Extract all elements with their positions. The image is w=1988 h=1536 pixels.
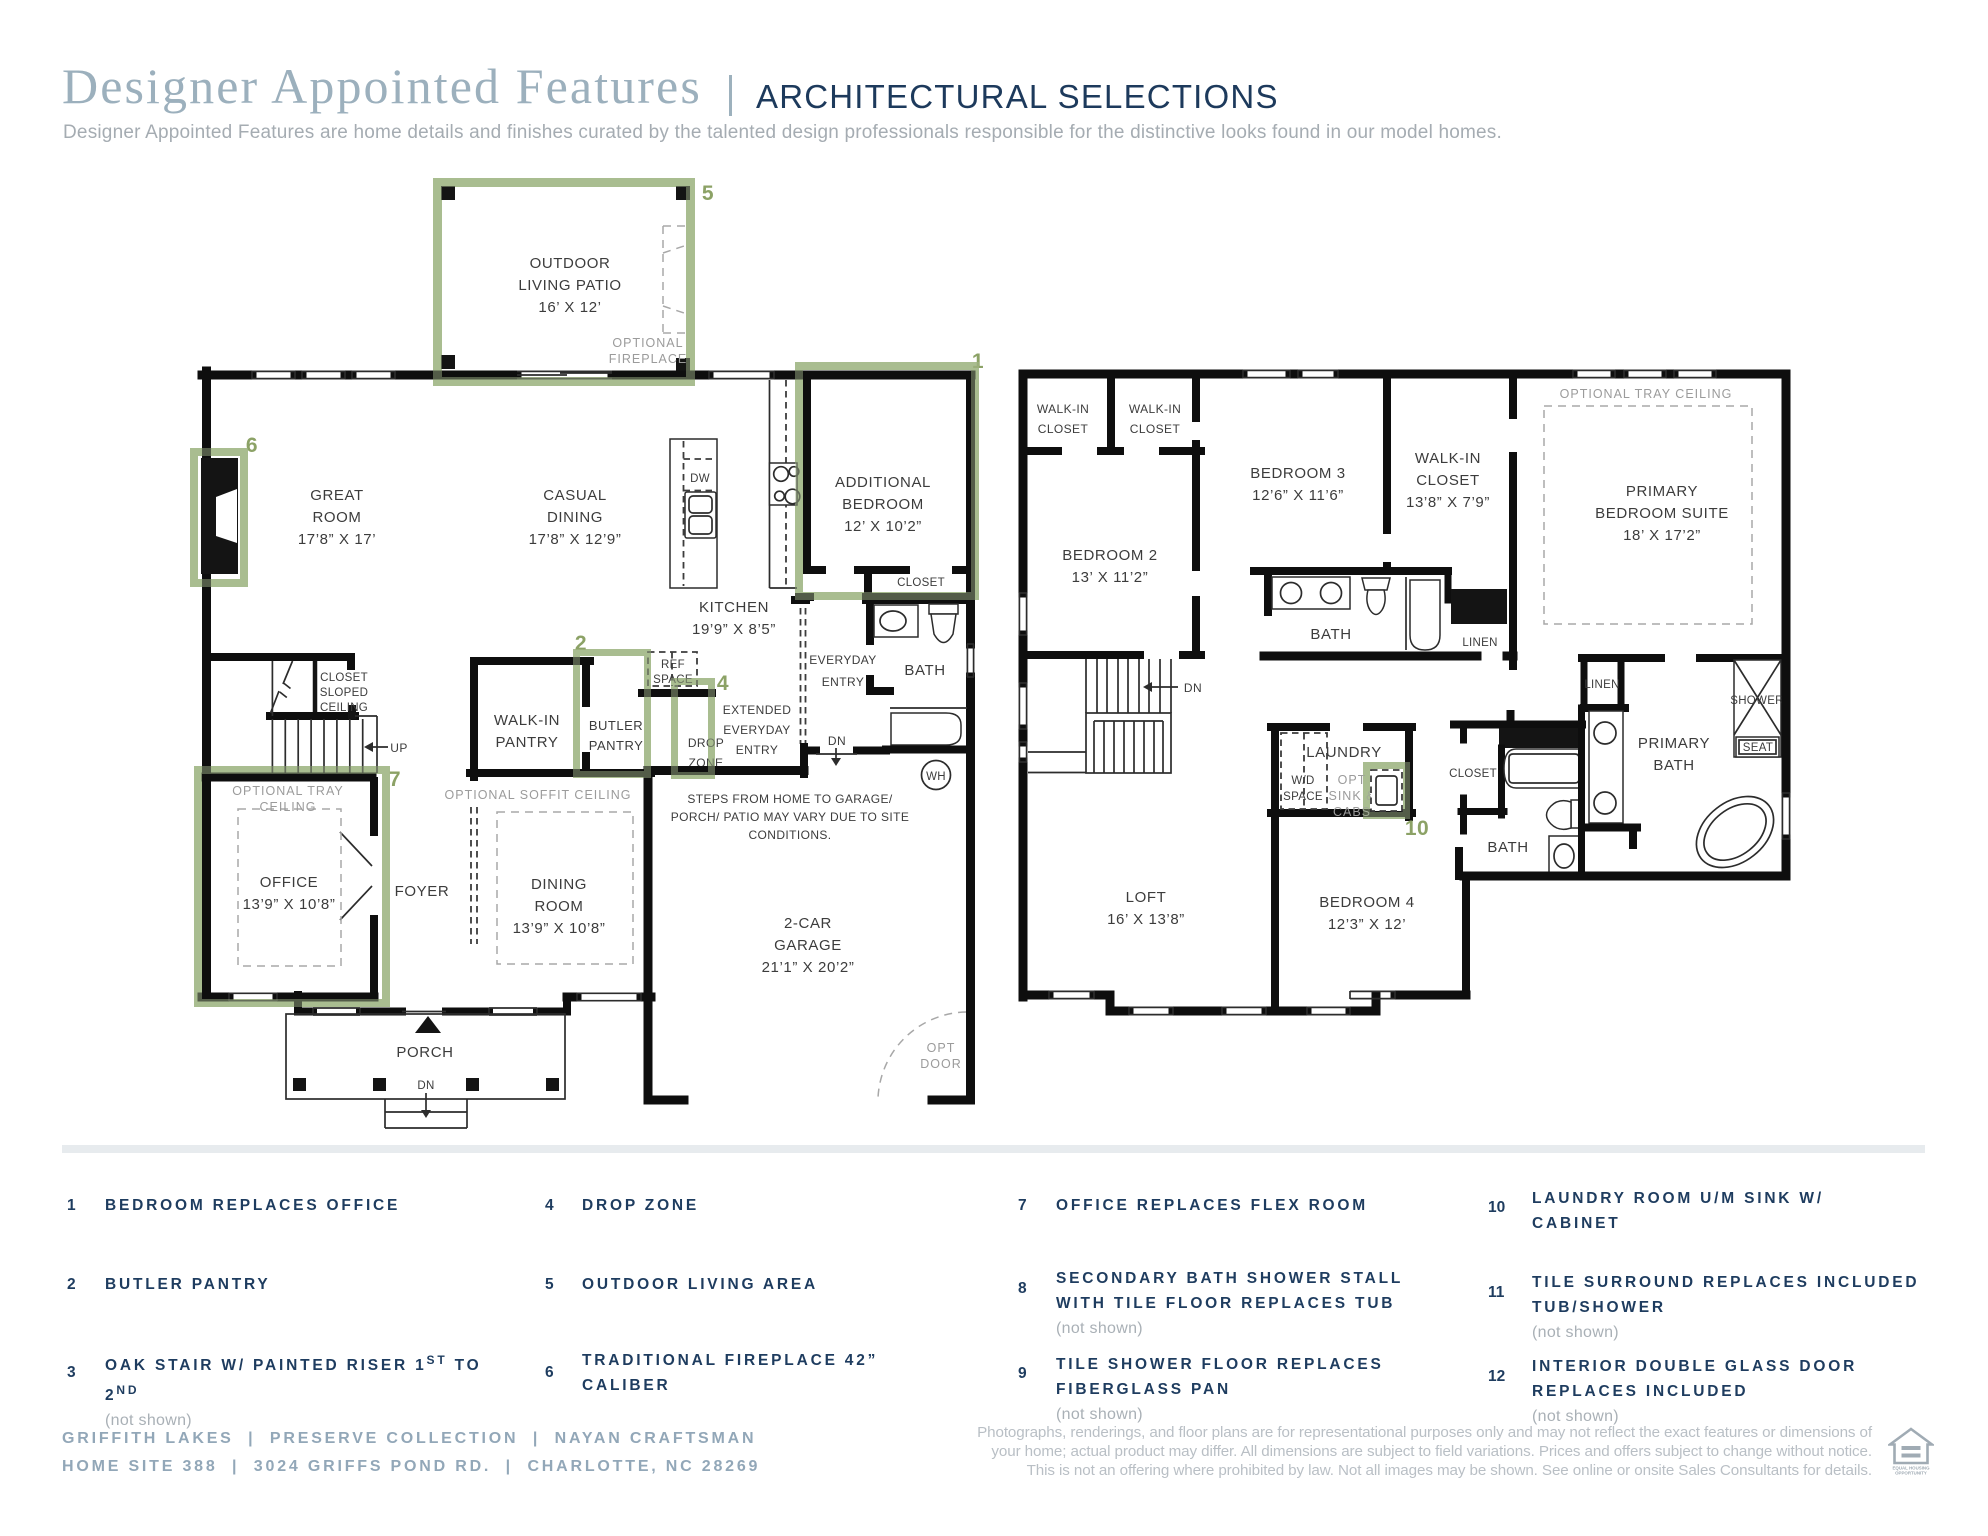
svg-text:FIREPLACE: FIREPLACE: [609, 352, 687, 366]
svg-text:OPT: OPT: [1338, 773, 1367, 787]
svg-text:DINING: DINING: [547, 509, 603, 526]
svg-text:EXTENDED: EXTENDED: [723, 703, 792, 717]
svg-text:WALK-IN: WALK-IN: [494, 712, 560, 729]
svg-text:CLOSET: CLOSET: [320, 672, 368, 684]
svg-text:WALK-IN: WALK-IN: [1415, 450, 1481, 467]
svg-text:17’8” X 12’9”: 17’8” X 12’9”: [529, 531, 622, 548]
svg-text:17’8” X 17’: 17’8” X 17’: [298, 531, 376, 548]
svg-text:ENTRY: ENTRY: [736, 743, 778, 757]
svg-text:DROP: DROP: [688, 736, 724, 750]
svg-text:LAUNDRY: LAUNDRY: [1306, 744, 1382, 761]
svg-text:DINING: DINING: [531, 876, 587, 893]
svg-text:CEILING: CEILING: [320, 702, 368, 714]
svg-text:REF: REF: [661, 659, 685, 671]
svg-text:OPT: OPT: [927, 1041, 956, 1055]
svg-text:BUTLER: BUTLER: [589, 718, 643, 733]
svg-text:21’1” X 20’2”: 21’1” X 20’2”: [762, 959, 855, 976]
svg-text:13’ X 11’2”: 13’ X 11’2”: [1072, 569, 1149, 586]
svg-text:DW: DW: [690, 473, 710, 485]
svg-text:PORCH/ PATIO MAY VARY DUE TO S: PORCH/ PATIO MAY VARY DUE TO SITE: [671, 810, 910, 824]
svg-text:OPPORTUNITY: OPPORTUNITY: [1895, 1471, 1927, 1476]
svg-text:4: 4: [717, 672, 729, 695]
svg-text:BATH: BATH: [1310, 626, 1351, 643]
svg-text:SHOWER: SHOWER: [1730, 695, 1784, 707]
svg-text:OUTDOOR: OUTDOOR: [530, 255, 611, 272]
svg-text:EVERYDAY: EVERYDAY: [809, 653, 876, 667]
svg-text:BEDROOM 2: BEDROOM 2: [1062, 547, 1157, 564]
svg-text:BEDROOM SUITE: BEDROOM SUITE: [1595, 505, 1729, 522]
svg-text:DN: DN: [417, 1080, 434, 1092]
svg-text:BATH: BATH: [1487, 839, 1528, 856]
svg-text:12’3” X 12’: 12’3” X 12’: [1328, 916, 1406, 933]
svg-text:5: 5: [702, 182, 714, 205]
svg-text:OPTIONAL: OPTIONAL: [612, 336, 683, 350]
svg-text:GREAT: GREAT: [310, 487, 364, 504]
svg-text:18’ X 17’2”: 18’ X 17’2”: [1623, 527, 1701, 544]
svg-text:DN: DN: [828, 734, 846, 748]
svg-text:CONDITIONS.: CONDITIONS.: [748, 828, 831, 842]
svg-text:PORCH: PORCH: [396, 1044, 453, 1061]
svg-text:16’ X 12’: 16’ X 12’: [538, 299, 601, 316]
svg-text:ENTRY: ENTRY: [822, 675, 864, 689]
svg-text:PANTRY: PANTRY: [495, 734, 558, 751]
svg-text:CASUAL: CASUAL: [543, 487, 607, 504]
svg-text:19’9” X 8’5”: 19’9” X 8’5”: [692, 621, 776, 638]
svg-text:7: 7: [389, 768, 401, 791]
svg-text:LIVING PATIO: LIVING PATIO: [518, 277, 621, 294]
svg-text:ROOM: ROOM: [534, 898, 583, 915]
svg-text:13’8” X 7’9”: 13’8” X 7’9”: [1406, 494, 1490, 511]
svg-text:WH: WH: [926, 771, 946, 783]
svg-text:BEDROOM 4: BEDROOM 4: [1319, 894, 1414, 911]
svg-text:PANTRY: PANTRY: [589, 738, 644, 753]
svg-text:STEPS FROM HOME TO GARAGE/: STEPS FROM HOME TO GARAGE/: [687, 792, 893, 806]
svg-text:LINEN: LINEN: [1462, 637, 1497, 649]
svg-text:BEDROOM: BEDROOM: [842, 496, 924, 513]
svg-text:16’ X 13’8”: 16’ X 13’8”: [1107, 911, 1185, 928]
svg-text:GARAGE: GARAGE: [774, 937, 842, 954]
svg-text:13’9” X 10’8”: 13’9” X 10’8”: [243, 896, 336, 913]
svg-text:SLOPED: SLOPED: [320, 687, 368, 699]
svg-text:BEDROOM 3: BEDROOM 3: [1250, 465, 1345, 482]
svg-text:SEAT: SEAT: [1743, 742, 1773, 754]
svg-text:CLOSET: CLOSET: [1130, 422, 1181, 436]
svg-text:W/D: W/D: [1291, 775, 1314, 787]
svg-text:10: 10: [1405, 817, 1429, 840]
svg-text:PRIMARY: PRIMARY: [1638, 735, 1710, 752]
svg-text:2-CAR: 2-CAR: [784, 915, 832, 932]
svg-text:EVERYDAY: EVERYDAY: [723, 723, 790, 737]
svg-text:DN: DN: [1184, 681, 1202, 695]
svg-text:LINEN: LINEN: [1584, 679, 1619, 691]
svg-text:CLOSET: CLOSET: [1416, 472, 1480, 489]
svg-text:BATH: BATH: [1653, 757, 1694, 774]
svg-text:12’ X 10’2”: 12’ X 10’2”: [844, 518, 922, 535]
svg-text:OPTIONAL TRAY: OPTIONAL TRAY: [232, 784, 343, 798]
svg-text:WALK-IN: WALK-IN: [1129, 402, 1181, 416]
svg-text:OPTIONAL TRAY CEILING: OPTIONAL TRAY CEILING: [1560, 387, 1733, 401]
svg-text:13’9” X 10’8”: 13’9” X 10’8”: [513, 920, 606, 937]
svg-text:CLOSET: CLOSET: [1449, 768, 1497, 780]
svg-text:SPACE: SPACE: [1283, 791, 1323, 803]
svg-text:PRIMARY: PRIMARY: [1626, 483, 1698, 500]
svg-text:ROOM: ROOM: [312, 509, 361, 526]
svg-text:UP: UP: [390, 741, 407, 755]
svg-text:12’6” X 11’6”: 12’6” X 11’6”: [1252, 487, 1344, 504]
svg-text:KITCHEN: KITCHEN: [699, 599, 769, 616]
svg-text:FOYER: FOYER: [395, 883, 450, 900]
svg-text:CEILING: CEILING: [259, 800, 316, 814]
svg-text:BATH: BATH: [904, 662, 945, 679]
svg-text:DOOR: DOOR: [920, 1057, 962, 1071]
svg-text:LOFT: LOFT: [1126, 889, 1167, 906]
svg-text:CLOSET: CLOSET: [1038, 422, 1089, 436]
svg-text:WALK-IN: WALK-IN: [1037, 402, 1089, 416]
svg-text:OFFICE: OFFICE: [260, 874, 319, 891]
svg-text:CLOSET: CLOSET: [897, 577, 945, 589]
svg-text:OPTIONAL SOFFIT CEILING: OPTIONAL SOFFIT CEILING: [445, 788, 632, 802]
svg-text:ADDITIONAL: ADDITIONAL: [835, 474, 931, 491]
